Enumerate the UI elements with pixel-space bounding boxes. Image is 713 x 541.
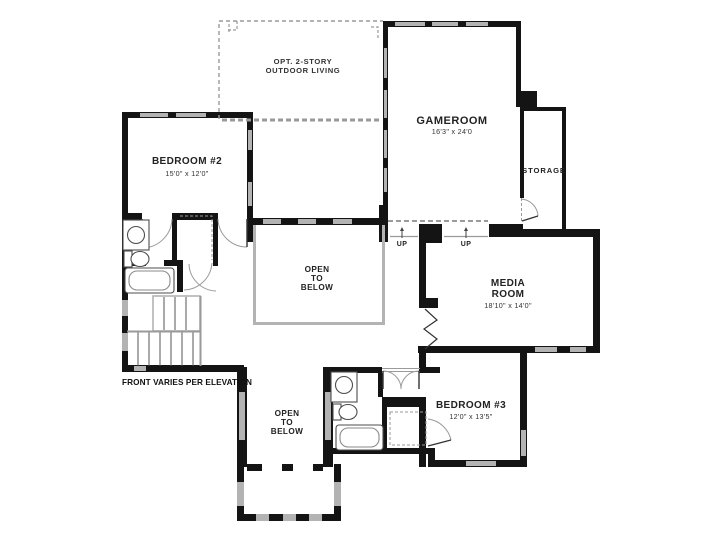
outdoor-living-label-line1: OPT. 2-STORY	[274, 57, 333, 66]
sink-basin	[336, 377, 353, 394]
open-below-front-line2: TO	[281, 418, 293, 427]
gameroom-dims: 16'3" x 24'0	[432, 127, 472, 136]
open-below-front-line1: OPEN	[275, 409, 300, 418]
toilet-bowl	[339, 405, 357, 420]
open-below-center-line1: OPEN	[305, 265, 330, 274]
outdoor-living-label-line2: OUTDOOR LIVING	[266, 66, 341, 75]
bedroom3-label: BEDROOM #3	[436, 400, 506, 411]
bedroom2-label: BEDROOM #2	[152, 156, 222, 167]
wall-break-zigzag	[424, 309, 437, 349]
bath2-fixtures	[123, 220, 174, 293]
storage-label: STORAGE	[522, 166, 566, 175]
bedroom2-dims: 15'0" x 12'0"	[165, 169, 208, 178]
sink-basin	[128, 227, 145, 244]
bedroom3-dims: 12'0" x 13'5"	[449, 412, 492, 421]
up-label-2: UP	[461, 241, 472, 248]
toilet-bowl	[131, 252, 149, 267]
media-room-dims: 18'10" x 14'0"	[484, 301, 532, 310]
gameroom-label: GAMEROOM	[416, 115, 487, 127]
media-room-label-line1: MEDIA	[491, 278, 525, 289]
floor-plan-page: OPT. 2-STORY OUTDOOR LIVING GAMEROOM 16'…	[0, 0, 713, 541]
open-below-center-line2: TO	[311, 274, 323, 283]
front-elevation-note: FRONT VARIES PER ELEVATION	[122, 378, 252, 387]
bathtub-basin	[340, 428, 379, 447]
open-below-center-line3: BELOW	[301, 283, 333, 292]
media-room-label-line2: ROOM	[492, 289, 525, 300]
open-below-front-line3: BELOW	[271, 427, 303, 436]
bathtub-basin	[129, 271, 170, 290]
up-label-1: UP	[397, 241, 408, 248]
bath3-fixtures	[331, 372, 383, 450]
floor-plan-drawing: OPT. 2-STORY OUTDOOR LIVING GAMEROOM 16'…	[0, 0, 713, 541]
stairs	[127, 227, 488, 366]
